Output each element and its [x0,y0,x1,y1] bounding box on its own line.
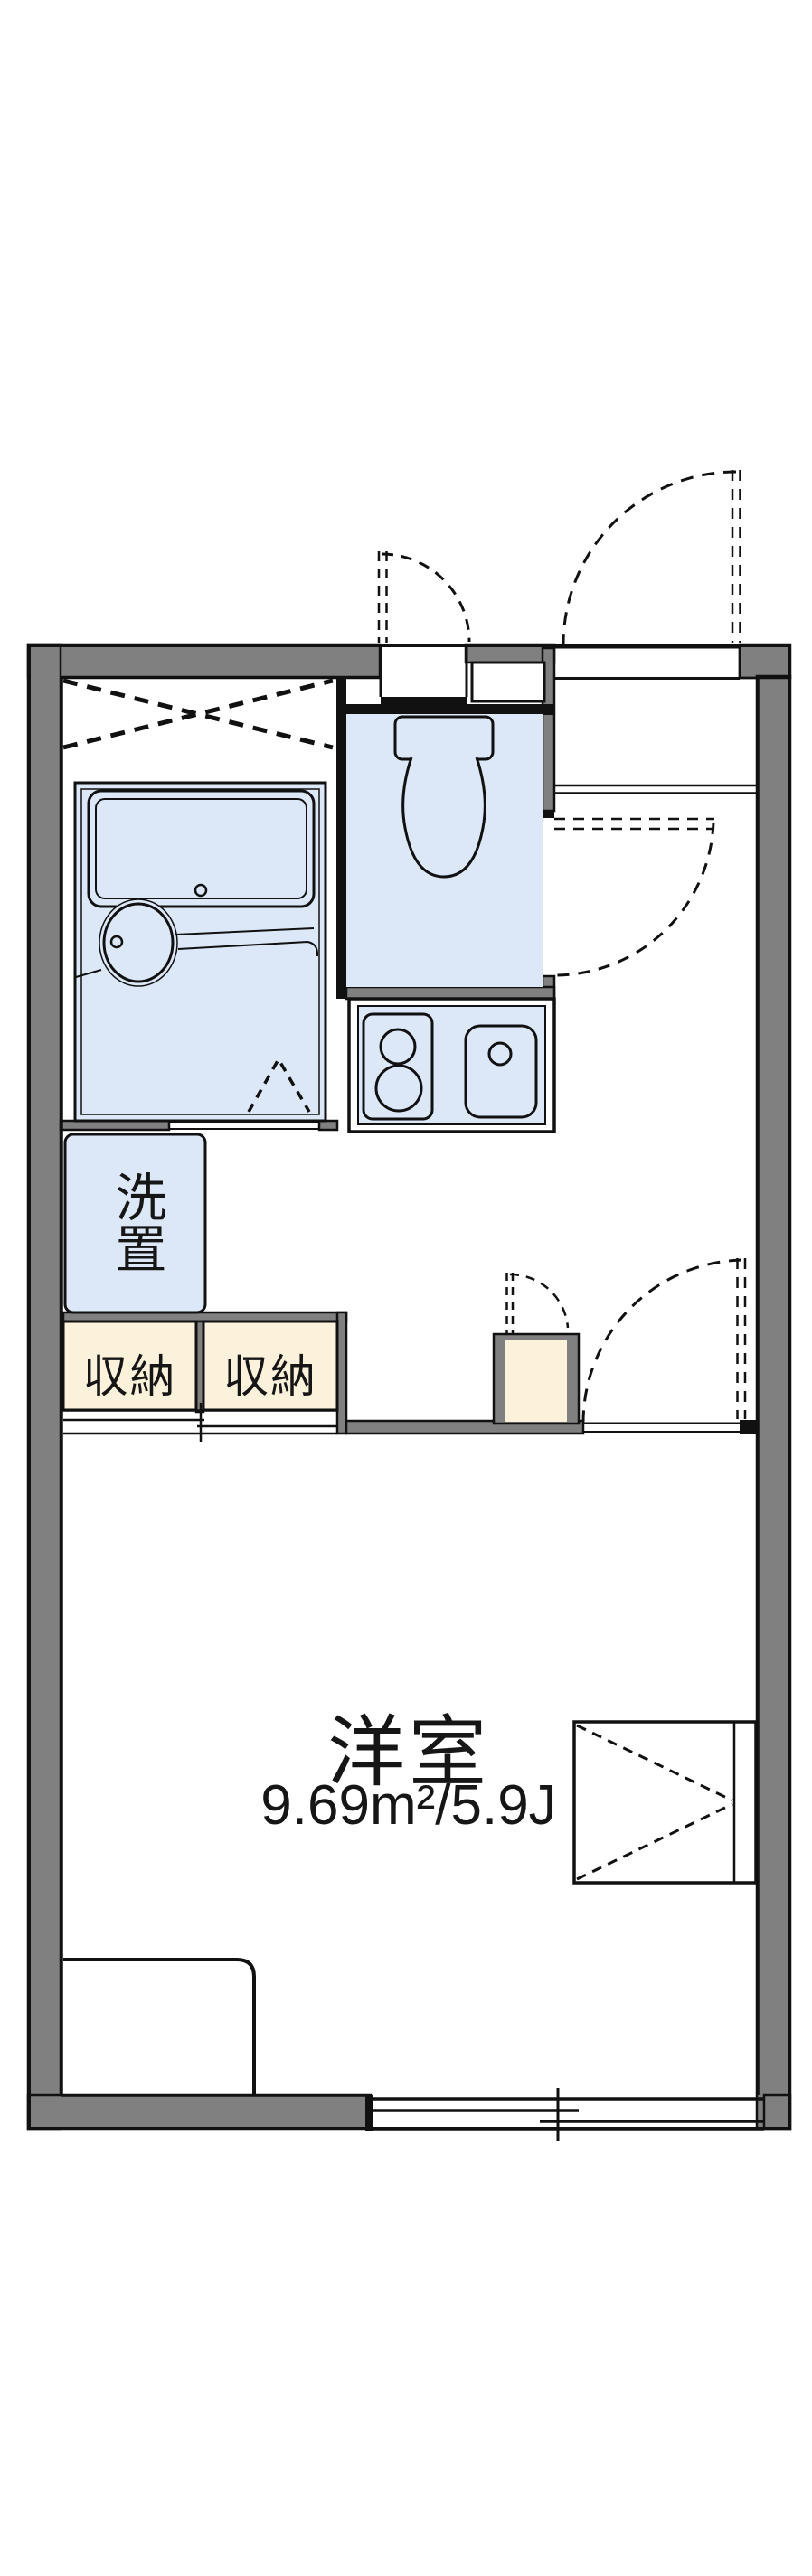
ceiling-hatch-x [63,681,333,747]
entrance-step [472,663,544,701]
wall-window-stub [764,2095,790,2129]
wall-left [28,644,61,2129]
bathtub [89,791,314,907]
washer-label: 洗置 [103,1161,163,1283]
toilet-door-arc [554,823,713,975]
wall-right [757,676,790,2129]
room-door-jamb [740,1420,757,1434]
front-door-leaf [732,470,741,643]
window-left-cap [365,2095,373,2131]
wash-basin [104,904,173,982]
entrance-door-jambs [381,647,467,697]
cupboard-door-leaf [507,1273,514,1334]
cupboard-door-arc [510,1274,568,1328]
room-door-arc [583,1260,741,1422]
sliding-window [371,2099,764,2129]
entrance-step-edge [554,785,757,794]
room-door-threshold [583,1424,740,1433]
bed-counter [63,1960,254,2095]
bathroom-door-threshold [169,1123,319,1129]
wall-toilet-bottom [346,987,554,999]
wall-toilet-right-cap [543,811,554,818]
toilet-tank [395,717,493,759]
wall-toilet-top [346,704,554,715]
cupboard-box [505,1340,567,1422]
kitchen [349,999,554,1132]
storage-right-label: 収納 [203,1340,337,1406]
storage-left-label: 収納 [63,1340,196,1406]
wall-top-left [28,644,380,678]
entry-side-door-arc [382,554,469,642]
toilet-door-leaf [554,819,714,829]
floor-plan-drawing [0,0,812,2576]
room-door-leaf [738,1258,746,1419]
front-door-arc [563,472,736,644]
wall-bottom [28,2095,371,2129]
wall-bath-toilet-divider [336,678,346,999]
entry-side-door-leaf [379,551,387,643]
room-area-label: 9.69m²/5.9J [136,1773,682,1838]
floor-plan: 洗置 収納 収納 洋室 9.69m²/5.9J [0,0,812,2576]
toilet-room [346,714,543,987]
unit-bath [75,783,326,1121]
front-doorway-lines [554,647,740,679]
toilet-bowl [403,757,486,877]
wall-door-pivot-stub [740,644,790,678]
